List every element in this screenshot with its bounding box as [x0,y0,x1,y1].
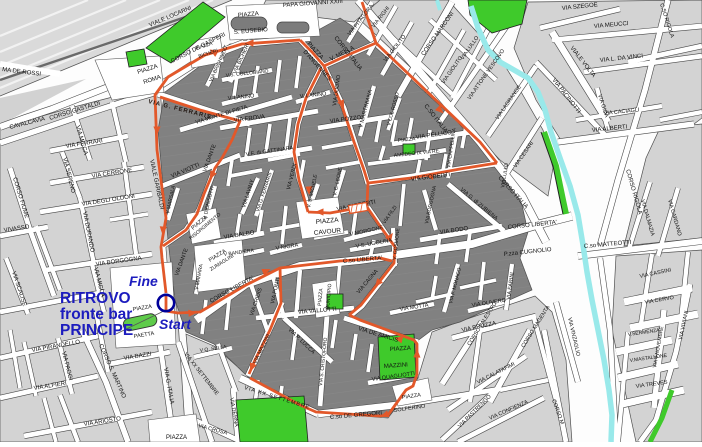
svg-text:PRINCIPE: PRINCIPE [60,322,133,339]
svg-text:Fine: Fine [129,273,158,289]
svg-text:fronte bar: fronte bar [60,306,132,323]
svg-text:Start: Start [159,316,192,332]
svg-text:RITROVO: RITROVO [60,290,131,307]
svg-text:PIAZZA: PIAZZA [166,435,187,441]
